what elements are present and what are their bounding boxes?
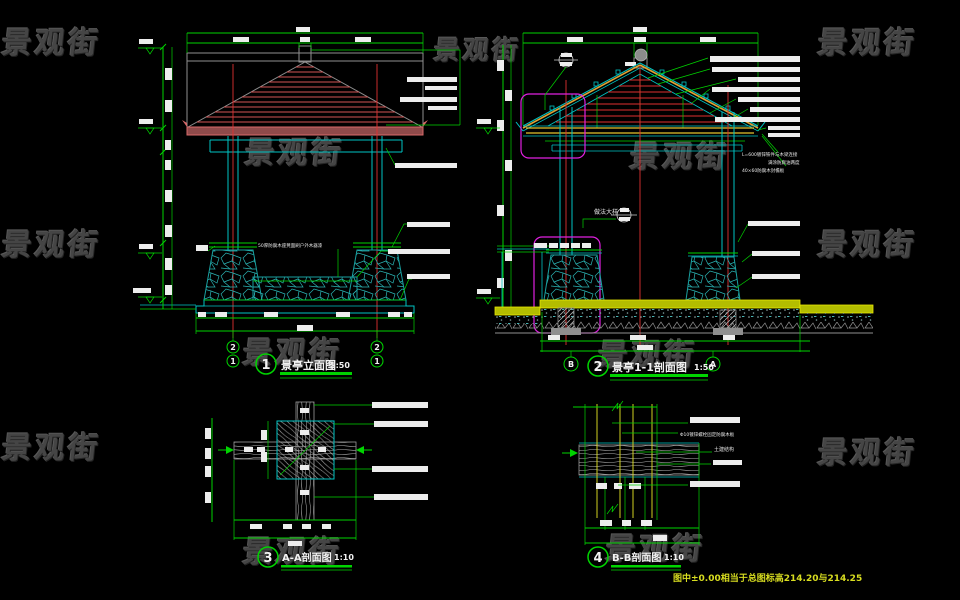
section-beams <box>523 126 758 151</box>
elevation-base <box>140 243 414 313</box>
sheet-note: 图中±0.00相当于总图标高214.20与214.25 <box>673 572 862 584</box>
section-bench <box>497 243 549 307</box>
view-title: A-A剖面图 <box>282 551 332 564</box>
section-title: 2 景亭1-1剖面图 1:50 <box>588 356 714 380</box>
view-number: 4 <box>593 551 602 566</box>
view-scale: 1:50 <box>330 361 350 370</box>
section-pedestals <box>544 243 740 300</box>
grid-bubble: 2 <box>374 343 380 352</box>
elevation-view: 50厚防腐木座凳面刷户外木器漆 2 1 <box>133 27 460 378</box>
detail-b-note-1: Φ10镀锌螺栓固定防腐木板 <box>680 431 735 438</box>
view-scale: 1:10 <box>664 553 684 562</box>
section-note-2: 满涂防腐油两度 <box>768 159 800 166</box>
elevation-left-dimensions <box>133 39 172 309</box>
detail-b-title: 4 B-B剖面图 1:10 <box>588 547 684 570</box>
column-foundation <box>558 308 574 328</box>
grid-bubble: B <box>568 360 574 369</box>
section-note-1: L=600镀锌铁件与木梁连接 <box>742 151 798 158</box>
column-foundation <box>720 310 736 328</box>
elevation-title: 1 景亭立面图 1:50 <box>256 354 352 378</box>
grid-bubble: 1 <box>374 357 380 366</box>
view-scale: 1:50 <box>694 363 714 372</box>
footing-pad <box>713 328 743 335</box>
view-number: 3 <box>263 551 272 566</box>
grid-bubble: 2 <box>230 343 236 352</box>
detail-a-view: 3 A-A剖面图 1:10 <box>205 402 428 570</box>
detail-a-title: 3 A-A剖面图 1:10 <box>258 547 354 570</box>
section-note-3: 40×60防腐木封檐板 <box>742 167 785 174</box>
section-ground <box>495 300 873 335</box>
view-number: 2 <box>593 360 602 375</box>
elevation-roof <box>182 46 428 135</box>
section-view: 做法大样 <box>476 27 873 380</box>
footing-pad <box>551 328 581 335</box>
elevation-top-dimensions <box>187 27 423 53</box>
drawing-canvas: 50厚防腐木座凳面刷户外木器漆 2 1 <box>0 0 960 600</box>
apex-detail-marker <box>635 49 647 61</box>
section-left-dimensions <box>476 45 512 309</box>
elevation-beam <box>210 140 402 152</box>
level-markers <box>133 39 162 303</box>
bench-note: 50厚防腐木座凳面刷户外木器漆 <box>258 242 323 249</box>
grid-bubble: 1 <box>230 357 236 366</box>
vertical-member <box>296 402 314 520</box>
view-title: 景亭立面图 <box>280 358 336 372</box>
view-scale: 1:10 <box>334 553 354 562</box>
view-title: B-B剖面图 <box>612 551 661 564</box>
section-detail-callout: 做法大样 <box>583 208 637 228</box>
view-number: 1 <box>261 358 270 373</box>
detail-b-note-2: 土建结构 <box>714 446 734 453</box>
view-title: 景亭1-1剖面图 <box>611 360 687 374</box>
cad-sheet: 景观街 景观街 景观街 景观街 景观街 景观街 景观街 景观街 景观街 景观街 … <box>0 0 960 600</box>
detail-b-view: Φ10镀锌螺栓固定防腐木板 土建结构 4 B-B剖面图 1:10 <box>562 401 742 570</box>
